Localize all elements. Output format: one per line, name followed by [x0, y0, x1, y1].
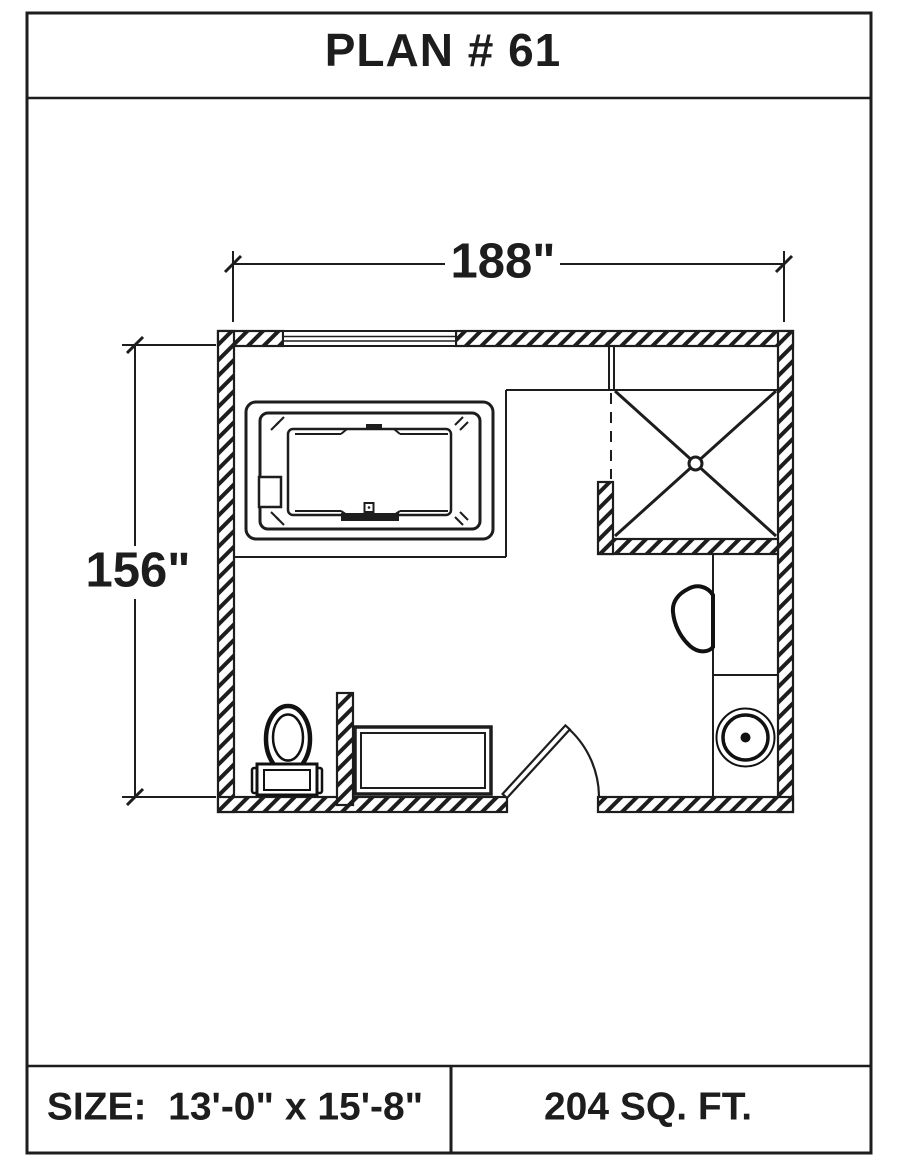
plan-title: PLAN # 61 [325, 27, 562, 73]
toilet [252, 706, 322, 795]
sink-drain [741, 733, 751, 743]
bottom-wall-right-segment [598, 797, 793, 812]
left-wall [218, 331, 234, 812]
tub-bottom-fitting [341, 513, 399, 521]
shower-bottom-wall [599, 539, 778, 554]
area-label: 204 SQ. FT. [544, 1088, 752, 1127]
size-label: SIZE: 13'-0" x 15'-8" [47, 1088, 423, 1127]
toilet-bowl [273, 715, 303, 761]
tub-pump-box [259, 477, 281, 507]
right-wall [778, 331, 793, 812]
toilet-partition-wall [337, 693, 353, 805]
top-wall-right-segment [456, 331, 793, 346]
storage-cabinet [355, 727, 491, 794]
width-dimension-label: 188" [451, 238, 556, 287]
jetted-bathtub [246, 402, 493, 539]
floor-plan-sheet: PLAN # 61 188" 156" SIZE: 13'-0" x 15'-8… [0, 0, 900, 1165]
bottom-wall-left-segment [218, 797, 507, 812]
round-sink [717, 709, 775, 767]
tub-top-fitting [366, 424, 382, 430]
corner-shower [615, 391, 776, 536]
wall-hung-toilet [673, 586, 713, 651]
window [283, 331, 456, 346]
shower-drain [689, 457, 702, 470]
shower-stub-wall [598, 482, 613, 554]
height-dimension-label: 156" [86, 547, 191, 596]
entry-door [503, 725, 599, 798]
door-leaf [503, 725, 570, 798]
door-swing-arc [570, 730, 599, 796]
